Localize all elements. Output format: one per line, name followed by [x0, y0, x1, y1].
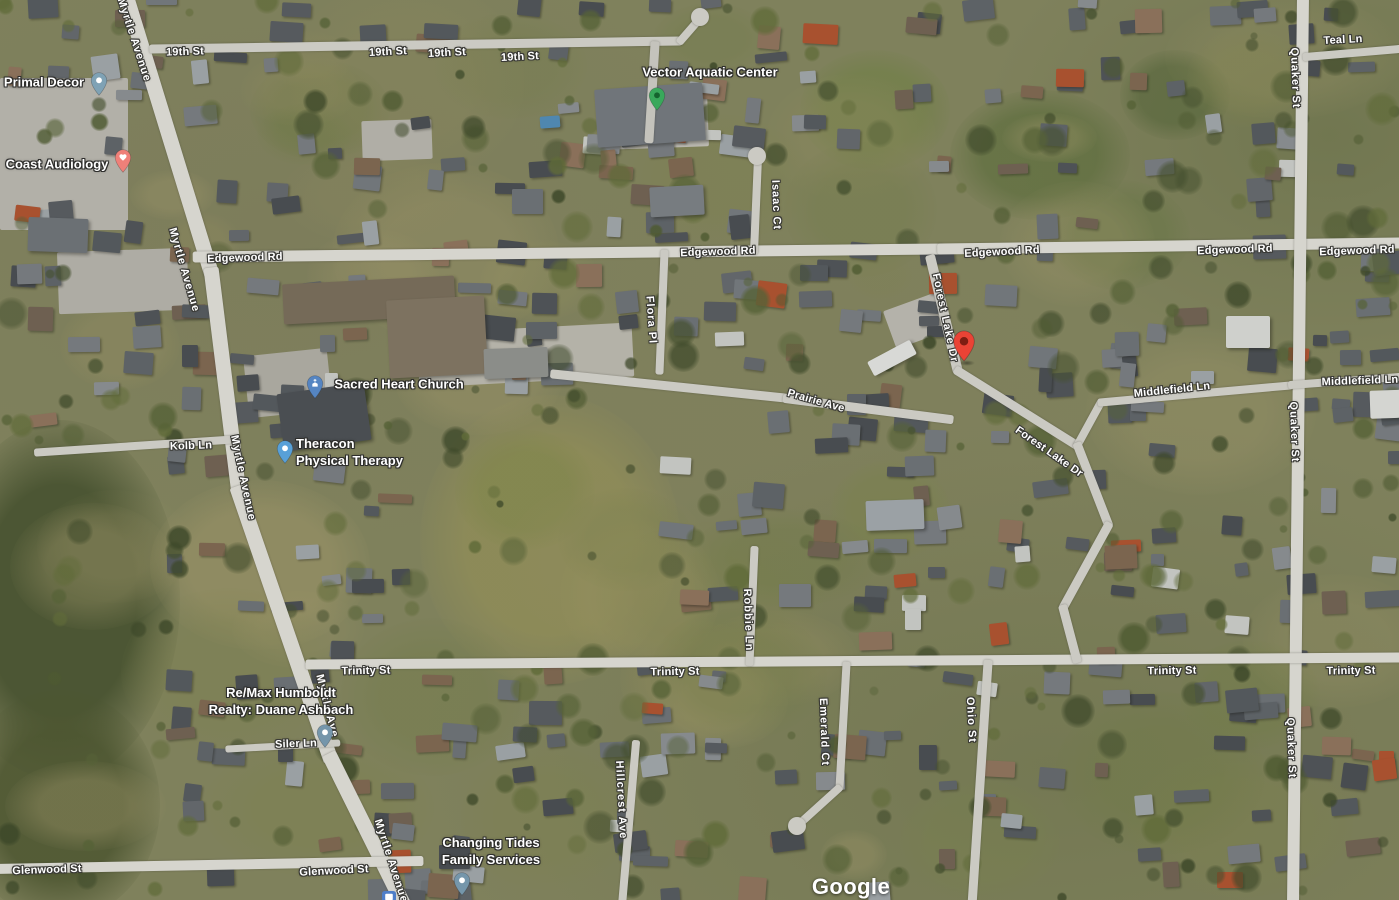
remax-humboldt-realty-duane-ashbach-marker-icon[interactable]	[317, 724, 334, 748]
google-logo[interactable]: Google	[812, 874, 890, 900]
poi-label-line: Realty: Duane Ashbach	[209, 701, 354, 718]
poi-label-line: Changing Tides	[442, 834, 540, 851]
poi-label-vector-aquatic-center[interactable]: Vector Aquatic Center	[642, 64, 777, 81]
destination-pin-icon[interactable]	[953, 330, 976, 362]
google-maps-satellite-view[interactable]: 19th St19th St19th St19th StEdgewood RdE…	[0, 0, 1399, 900]
poi-label-line: Primal Decor	[4, 74, 84, 91]
coast-audiology-marker-icon[interactable]	[115, 149, 132, 173]
poi-label-sacred-heart-church[interactable]: Sacred Heart Church	[334, 376, 463, 393]
poi-layer: Primal DecorCoast AudiologyVector Aquati…	[0, 0, 1399, 900]
poi-label-primal-decor[interactable]: Primal Decor	[4, 74, 84, 91]
poi-label-theracon-physical-therapy[interactable]: TheraconPhysical Therapy	[296, 435, 403, 469]
vector-aquatic-center-marker-icon[interactable]	[649, 87, 666, 111]
poi-label-line: Vector Aquatic Center	[642, 64, 777, 81]
sacred-heart-church-marker-icon[interactable]	[307, 375, 324, 399]
poi-label-changing-tides-family-services[interactable]: Changing TidesFamily Services	[442, 834, 540, 868]
poi-label-line: Re/Max Humboldt	[209, 684, 354, 701]
changing-tides-family-services-marker-icon[interactable]	[454, 872, 471, 896]
poi-label-line: Coast Audiology	[6, 156, 109, 173]
transit-stop-icon[interactable]	[382, 891, 396, 900]
poi-label-line: Physical Therapy	[296, 452, 403, 469]
primal-decor-marker-icon[interactable]	[91, 72, 108, 96]
poi-label-line: Sacred Heart Church	[334, 376, 463, 393]
theracon-physical-therapy-marker-icon[interactable]	[277, 440, 294, 464]
poi-label-line: Theracon	[296, 435, 403, 452]
poi-label-line: Family Services	[442, 851, 540, 868]
poi-label-coast-audiology[interactable]: Coast Audiology	[6, 156, 109, 173]
poi-label-remax-humboldt-realty-duane-ashbach[interactable]: Re/Max HumboldtRealty: Duane Ashbach	[209, 684, 354, 718]
